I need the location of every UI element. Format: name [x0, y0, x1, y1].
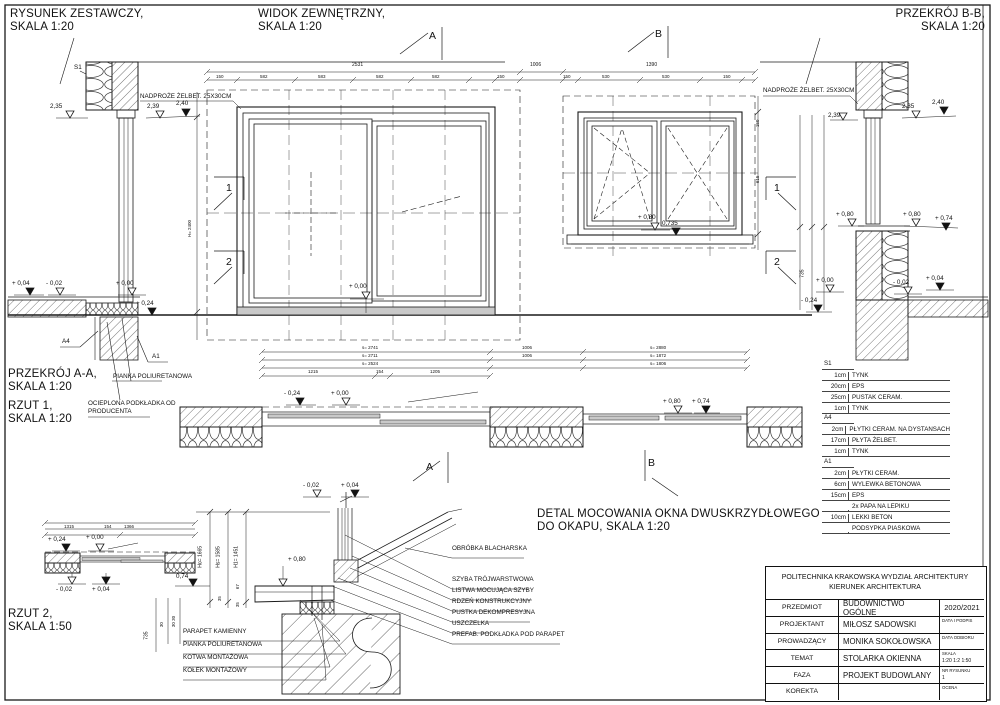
callout-szyba: SZYBA TRÓJWARSTWOWA [452, 576, 534, 583]
legend-row: 2x PAPA NA LEPIKU [822, 501, 950, 512]
legend-thickness: 2cm [822, 426, 846, 434]
elevation-mark: + 0,74 [935, 215, 953, 222]
tb-label-temat: TEMAT [766, 649, 838, 666]
dim-label: 1006 [530, 63, 541, 69]
section-marker-a-bottom: A [426, 461, 433, 473]
legend-row: 6cmWYLEWKA BETONOWA [822, 479, 950, 490]
drawing-sheet: RYSUNEK ZESTAWCZY, SKALA 1:20 WIDOK ZEWN… [0, 0, 1000, 705]
legend-row: 15cmEPS [822, 490, 950, 501]
dim-label: 35 [235, 602, 240, 607]
dim-label: 582 [376, 74, 384, 79]
elevation-mark: - 0,02 [56, 586, 72, 593]
legend-material: PUSTAK CERAM. [849, 394, 950, 402]
tb-side-data-podpis: DATA I PODPIS [939, 616, 984, 633]
legend-thickness: 17cm [822, 437, 849, 445]
note-ocieplona-1: OCIEPLONA PODKŁADKA OD [88, 400, 176, 407]
tb-label-projektant: PROJEKTANT [766, 616, 838, 633]
pane-markers [214, 177, 796, 284]
tb-label-przedmiot: PRZEDMIOT [766, 599, 838, 616]
section-marker-b-top: B [655, 28, 662, 40]
legend-row: 17cmPŁYTA ŻELBET. [822, 435, 950, 446]
tb-side-year: 2020/2021 [939, 599, 984, 616]
section-marker-a-top: A [429, 30, 436, 42]
legend-material: EPS [849, 383, 950, 391]
dim-label: s= 2741 [362, 345, 378, 350]
title-przekroj-aa-scale: SKALA 1:20 [8, 381, 72, 394]
dim-label: 150 [563, 74, 571, 79]
legend-material: PŁYTKI CERAM. NA DYSTANSACH [846, 426, 950, 434]
dim-label: 582 [432, 74, 440, 79]
dim-label: H1= 1451 [234, 546, 240, 568]
tb-side-skala: SKALA 1:20 1:2 1:50 [939, 649, 984, 666]
tb-label-faza: FAZA [766, 666, 838, 683]
elevation-mark: + 0,74 [692, 398, 710, 405]
legend-row: 10cmLEKKI BETON [822, 512, 950, 523]
dim-label: 30 30 [171, 616, 176, 627]
dim-chains-top [204, 69, 758, 83]
dim-label: 615 [755, 176, 760, 184]
elevation-mark: + 0,00 [349, 283, 367, 290]
pane-marker-2-left: 2 [226, 256, 232, 268]
tb-value-projektant: MIŁOSZ SADOWSKI [838, 616, 939, 633]
dim-label: 735 [144, 631, 150, 639]
pane-marker-2-right: 2 [774, 256, 780, 268]
legend-a4: A4 2cmPŁYTKI CERAM. NA DYSTANSACH 17cmPŁ… [822, 414, 950, 457]
tb-value-faza: PROJEKT BUDOWLANY [838, 666, 939, 683]
elevation-mark: + 0,04 [341, 482, 359, 489]
dim-chains-rzut1 [259, 349, 750, 379]
legend-material: EPS [849, 492, 950, 500]
legend-s1: S1 1cmTYNK 20cmEPS 25cmPUSTAK CERAM. 1cm… [822, 360, 950, 414]
legend-a1-code: A1 [822, 458, 854, 468]
university-name: POLITECHNIKA KRAKOWSKA WYDZIAŁ ARCHITEKT… [782, 573, 969, 583]
elevation-mark: + 0,04 [12, 280, 30, 287]
dim-label: 530 [662, 74, 670, 79]
dim-label: 150 [497, 74, 505, 79]
title-detal: DETAL MOCOWANIA OKNA DWUSKRZYDŁOWEGO [537, 508, 820, 521]
callout-rdzen: RDZEŃ KONSTRUKCYJNY [452, 598, 531, 605]
title-widok-zewnetrzny-scale: SKALA 1:20 [258, 21, 322, 34]
pane-marker-1-left: 1 [226, 182, 232, 194]
legend-thickness [822, 510, 849, 511]
legend-thickness: 15cm [822, 492, 849, 500]
callout-parapet: PARAPET KAMIENNY [183, 628, 246, 635]
legend-row: 2cmPŁYTKI CERAM. NA DYSTANSACH [822, 424, 950, 435]
floor-tag-a1: A1 [152, 353, 160, 360]
dim-label: s= 2524 [362, 361, 378, 366]
elevation-mark: + 0,00 [86, 534, 104, 541]
tb-side-nr-rysunku: NR RYSUNKU 1 [939, 666, 984, 683]
tb-side-skala-value: 1:20 1:2 1:50 [942, 658, 971, 666]
legend-thickness: 1cm [822, 405, 849, 413]
title-block-header: POLITECHNIKA KRAKOWSKA WYDZIAŁ ARCHITEKT… [766, 567, 984, 599]
note-nadproze-right: NADPROŻE ŻELBET. 25X30CM [763, 87, 854, 94]
dim-label: 35 [217, 596, 222, 601]
tb-value-temat: STOLARKA OKIENNA [838, 649, 939, 666]
legend-row: 2cmPŁYTKI CERAM. [822, 468, 950, 479]
note-pianka: PIANKA POLIURETANOWA [113, 373, 192, 380]
floor-tag-a4: A4 [62, 338, 70, 345]
tb-label-korekta: KOREKTA [766, 683, 838, 700]
dim-label: 1366 [124, 524, 134, 529]
dim-label: 1390 [646, 63, 657, 69]
legend-thickness: 6cm [822, 481, 849, 489]
legend-thickness: 1cm [822, 372, 849, 380]
legend-material: PŁYTA ŻELBET. [849, 437, 950, 445]
callout-pustka: PUSTKA DEKOMPRESYJNA [452, 609, 535, 616]
elevation-mark: 2,35 [902, 103, 914, 110]
title-block: POLITECHNIKA KRAKOWSKA WYDZIAŁ ARCHITEKT… [765, 566, 987, 702]
legend-material: PODSYPKA PIASKOWA [849, 525, 950, 533]
dim-label: 735 [800, 269, 806, 277]
callout-prefab: PREFAB. PODKŁADKA POD PARAPET [452, 631, 565, 638]
legend-material: 2x PAPA NA LEPIKU [849, 503, 950, 511]
tb-label-prowadzacy: PROWADZĄCY [766, 633, 838, 650]
dim-label: 583 [318, 74, 326, 79]
title-przekroj-bb: PRZEKRÓJ B-B, [820, 8, 985, 21]
callout-obrobka-blacharska: OBRÓBKA BLACHARSKA [452, 545, 527, 552]
elevation-mark: - 0,24 [284, 390, 300, 397]
elevation-mark: 2,40 [176, 100, 188, 107]
legend-thickness [822, 532, 849, 533]
legend-a1: A1 2cmPŁYTKI CERAM. 6cmWYLEWKA BETONOWA … [822, 458, 950, 534]
tb-side-data-odbioru: DATA ODBIORU [939, 633, 984, 650]
elevation-mark: + 0,80 [638, 214, 656, 221]
elevation-mark: - 0,02 [893, 279, 909, 286]
dim-label: 1205 [430, 369, 440, 374]
elevation-mark: + 0,24 [48, 536, 66, 543]
faculty-name: KIERUNEK ARCHITEKTURA [829, 583, 921, 593]
elevation-mark: - 0,24 [801, 297, 817, 304]
elevation-mark: 0,74 [176, 573, 188, 580]
elevation-mark: + 0,00 [116, 280, 134, 287]
dim-label: H= 2400 [187, 220, 192, 237]
legend-s1-code: S1 [822, 360, 854, 370]
dim-label: 154 [104, 524, 112, 529]
title-detal-scale: DO OKAPU, SKALA 1:20 [537, 521, 670, 534]
dim-label: s= 2711 [362, 353, 378, 358]
dim-label: 150 [216, 74, 224, 79]
legend-thickness: 10cm [822, 514, 849, 522]
title-rysunek-zestawczy: RYSUNEK ZESTAWCZY, [10, 8, 144, 21]
elevation-mark: 2,39 [147, 103, 159, 110]
dim-label: 30 [159, 622, 164, 627]
elevation-mark: - 0,02 [46, 280, 62, 287]
elevation-mark: 2,40 [932, 99, 944, 106]
dim-label: 1315 [64, 524, 74, 529]
callout-listwa: LISTWA MOCUJĄCA SZYBY [452, 587, 534, 594]
tb-side-ocena: OCENA [939, 683, 984, 700]
elevation-mark: 2,39 [828, 112, 840, 119]
elevation-mark: - 0,02 [303, 482, 319, 489]
legend-thickness: 2cm [822, 470, 849, 478]
tb-value-korekta [838, 683, 939, 700]
elevation-windows [8, 90, 812, 340]
tb-side-nr-label: NR RYSUNKU [942, 668, 970, 674]
title-widok-zewnetrzny: WIDOK ZEWNĘTRZNY, [258, 8, 385, 21]
legend-row: 1cmTYNK [822, 446, 950, 457]
elevation-mark: + 0,00 [331, 390, 349, 397]
legend-material: TYNK [849, 405, 950, 413]
title-rzut1: RZUT 1, [8, 400, 53, 413]
legend-thickness: 25cm [822, 394, 849, 402]
legend-row: 1cmTYNK [822, 403, 950, 414]
dim-label: 1215 [308, 369, 318, 374]
title-rysunek-zestawczy-scale: SKALA 1:20 [10, 21, 74, 34]
rzut2-plan [42, 520, 198, 584]
wall-tag-s1: S1 [74, 64, 82, 71]
legend-row: 20cmEPS [822, 381, 950, 392]
callout-kolek: KOŁEK MONTAŻOWY [183, 667, 247, 674]
dim-label: 1006 [522, 353, 532, 358]
legend-material: TYNK [849, 372, 950, 380]
legend-row: 1cmTYNK [822, 370, 950, 381]
dim-label: 1006 [522, 345, 532, 350]
legend-thickness: 20cm [822, 383, 849, 391]
tb-value-prowadzacy: MONIKA SOKOŁOWSKA [838, 633, 939, 650]
elevation-mark: + 0,80 [663, 398, 681, 405]
callout-uszczelka: USZCZELKA [452, 620, 489, 627]
legend-material: TYNK [849, 448, 950, 456]
dim-label: Hs= 1585 [216, 546, 222, 568]
elevation-mark: + 0,80 [903, 211, 921, 218]
legend-row: PODSYPKA PIASKOWA [822, 523, 950, 534]
title-rzut2: RZUT 2, [8, 608, 53, 621]
dim-label: 2531 [352, 63, 363, 69]
legend-a4-code: A4 [822, 414, 854, 424]
note-ocieplona-2: PRODUCENTA [88, 408, 132, 415]
elevation-mark: 2,35 [50, 103, 62, 110]
title-rzut2-scale: SKALA 1:50 [8, 621, 72, 634]
dim-label: s= 1872 [650, 353, 666, 358]
title-rzut1-scale: SKALA 1:20 [8, 413, 72, 426]
pane-marker-1-right: 1 [774, 182, 780, 194]
legend-material: WYLEWKA BETONOWA [849, 481, 950, 489]
tb-value-przedmiot: BUDOWNICTWO OGÓLNE [838, 599, 939, 616]
dim-label: 582 [260, 74, 268, 79]
section-marker-b-bottom: B [648, 457, 655, 469]
callout-kotwa: KOTWA MONTAŻOWA [183, 654, 248, 661]
section-markers-top [400, 26, 668, 60]
dim-label: 67 [235, 584, 240, 589]
dim-label: 150 [755, 120, 760, 128]
elevation-mark: + 0,80 [288, 556, 306, 563]
legend-row: 25cmPUSTAK CERAM. [822, 392, 950, 403]
elevation-mark: + 0,24 [136, 300, 154, 307]
legend-material: LEKKI BETON [849, 514, 950, 522]
dim-label: s= 1806 [650, 361, 666, 366]
elevation-mark: 0,735 [662, 220, 678, 227]
callout-pianka: PIANKA POLIURETANOWA [183, 641, 262, 648]
dim-label: 154 [376, 369, 384, 374]
elevation-mark: + 0,80 [836, 211, 854, 218]
title-przekroj-aa: PRZEKRÓJ A-A, [8, 368, 97, 381]
elevation-mark: + 0,04 [926, 275, 944, 282]
legend-thickness: 1cm [822, 448, 849, 456]
title-przekroj-bb-scale: SKALA 1:20 [820, 21, 985, 34]
tb-side-nr-value: 1 [942, 675, 945, 683]
dim-label: Ho= 1665 [198, 546, 204, 568]
legend-material: PŁYTKI CERAM. [849, 470, 950, 478]
rzut1-plan [180, 392, 802, 497]
dim-label: s= 2880 [650, 345, 666, 350]
dim-label: 530 [602, 74, 610, 79]
elevation-mark: + 0,00 [816, 277, 834, 284]
elevation-mark: + 0,04 [92, 586, 110, 593]
dim-label: 150 [723, 74, 731, 79]
